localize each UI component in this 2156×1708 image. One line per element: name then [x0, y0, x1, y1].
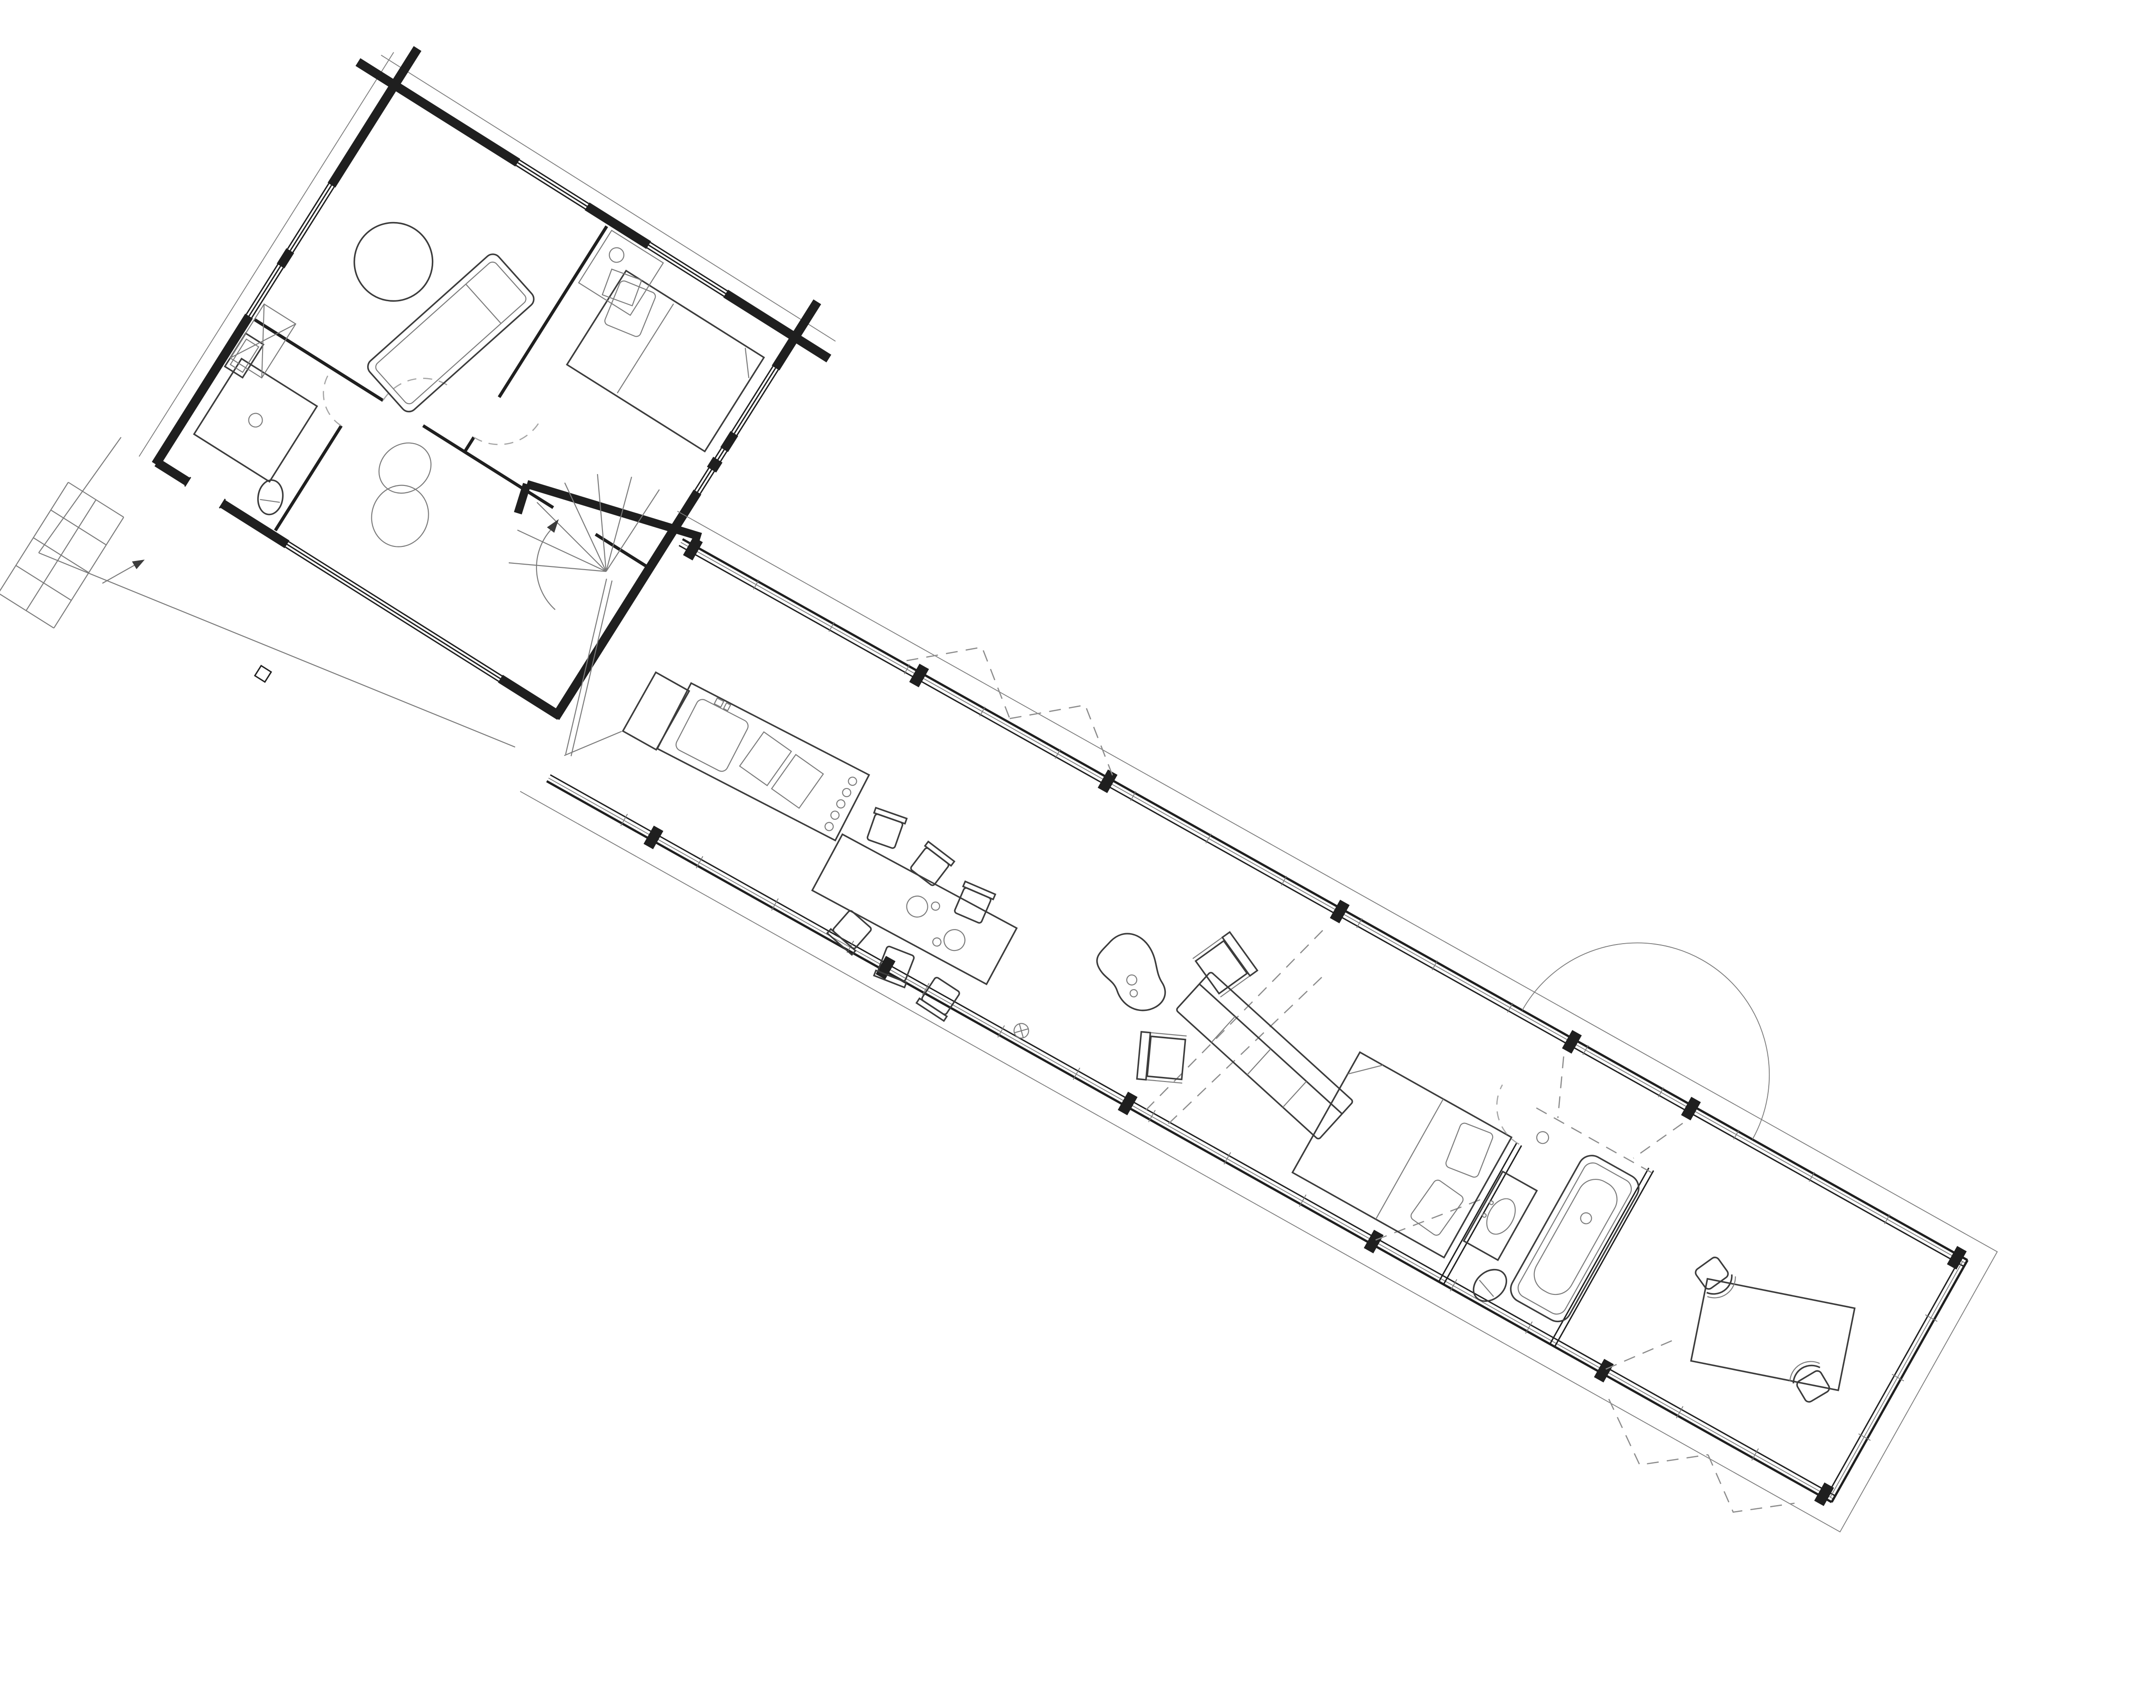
dining-chairs — [801, 803, 1023, 1022]
desk — [1691, 1279, 1855, 1390]
daybed — [364, 251, 537, 415]
kitchen-island — [658, 683, 869, 840]
mullion-ticks-bottom — [621, 814, 1758, 1460]
cabin-bathroom — [168, 334, 353, 525]
dashed-opening-symbols — [739, 618, 1965, 1540]
cabin-exterior-walls — [118, 25, 852, 739]
office — [1654, 1230, 1877, 1430]
plate — [940, 926, 968, 954]
cabin-block — [117, 25, 852, 741]
entry-arrow — [102, 560, 145, 583]
plate — [903, 892, 931, 920]
kidney-coffee-table — [1090, 925, 1181, 1021]
round-table — [339, 208, 447, 316]
sofa — [1176, 971, 1353, 1140]
floor-plan-page — [0, 0, 2156, 1708]
pillow — [1445, 1122, 1494, 1179]
island-return-counter — [623, 672, 689, 750]
wing-glazed-walls — [543, 533, 1974, 1510]
cabin-partitions — [165, 94, 789, 708]
shower-drain — [246, 411, 265, 430]
entry-tile-grid — [0, 482, 124, 628]
pillow — [1409, 1178, 1465, 1237]
hob-knobs — [824, 776, 858, 832]
pillow — [603, 279, 657, 338]
bathroom-door-arc — [1481, 1085, 1541, 1144]
tub-drain — [1579, 1211, 1594, 1226]
desk-chair — [1691, 1253, 1741, 1304]
glazed-wing — [501, 415, 2051, 1567]
counter-basin — [607, 245, 627, 265]
window-mullion-post — [707, 457, 723, 473]
bathroom-floor-drain — [1534, 1130, 1550, 1146]
cabin-window-bands — [151, 81, 801, 722]
toilet — [256, 479, 285, 516]
stair-junction — [509, 474, 701, 756]
bathroom-left-partition — [1439, 1143, 1522, 1284]
floor-gully — [1012, 1021, 1032, 1041]
island-sink — [674, 697, 750, 774]
cabin-door-arcs — [309, 314, 539, 514]
wing-roof-overhang — [520, 511, 1997, 1532]
dining-table — [812, 834, 1017, 984]
dining-area — [787, 795, 1038, 1031]
wing-bed — [1292, 1052, 1511, 1258]
deck-terrace — [0, 437, 515, 747]
deck-left-edge — [39, 437, 121, 553]
floor-plan-canvas — [0, 0, 2156, 1708]
large-door-swing-arc — [1522, 895, 1817, 1140]
facade-posts — [550, 537, 1967, 1506]
deck-post — [255, 666, 271, 682]
entry-door-jambs — [185, 477, 225, 508]
stair-direction-arrow — [536, 519, 559, 610]
wing-bedroom — [1292, 1052, 1511, 1258]
vanity — [1464, 1172, 1537, 1260]
kitchen — [623, 659, 871, 848]
deck-outer-edge — [39, 553, 515, 747]
